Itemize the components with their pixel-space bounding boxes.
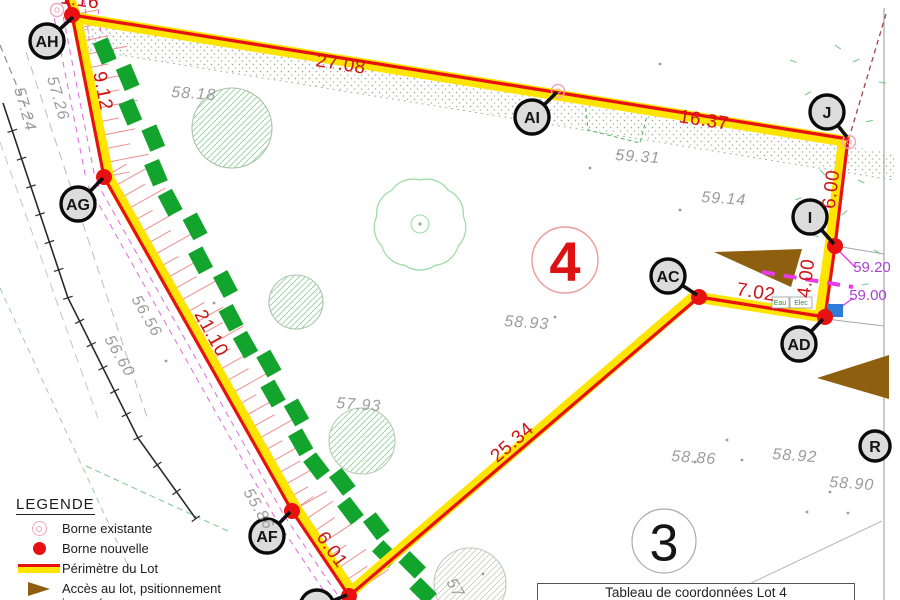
access-arrow-icon [16,581,62,596]
hedge-square [116,64,140,91]
lot-perimeter-icon [16,561,62,576]
vegetation-scribble [853,59,859,62]
coordinates-table: Tableau de coordonnées Lot 4 [537,583,855,600]
plan-graphic [107,154,148,162]
vegetation-scribble [805,92,811,96]
marker-label-AC: AC [656,269,680,286]
elevation-point [213,302,216,305]
hedge-square [213,270,238,298]
elevation-point [659,63,662,66]
hedge-square [188,246,213,274]
marker-J: J [810,95,847,137]
legend-item-existing-borne: Borne existante [16,521,266,536]
marker-partial [300,590,347,600]
elevation-point [554,316,557,319]
plan-graphic [153,462,161,468]
plan-graphic [168,261,198,278]
plan-graphic [836,246,884,254]
access-arrow [817,355,889,399]
elevation-point [679,209,682,212]
hedge-square [141,124,165,151]
hedge-square [183,212,208,240]
vegetation-scribble [835,45,841,49]
vegetation-scribble [842,211,847,215]
elevation-point [482,573,485,576]
hedge-square [409,577,437,600]
hedge-square [337,497,364,525]
marker-R: R [860,431,890,461]
hedge-square [398,551,426,579]
marker-label-R: R [869,439,881,456]
vegetation-scribble [866,120,873,122]
hedge-square [144,159,168,186]
tree-symbol [269,275,323,329]
legend-item-access: Accès au lot, psitionnement imposé, 4.0m… [16,581,266,600]
elevation-label-58.92: 58.92 [772,446,818,466]
legend: LEGENDE Borne existante Borne nouvelle P… [16,496,266,600]
elevation-label-56.56: 56.56 [128,293,165,341]
marker-label-AG: AG [66,197,90,214]
elevation-point [589,167,592,170]
plan-graphic [122,184,145,197]
legend-label: Borne nouvelle [62,541,149,556]
vegetation-scribble [862,284,869,285]
vegetation-scribble [790,60,797,62]
plan-graphic [849,14,886,138]
vegetation-scribble [858,180,864,183]
hedge-square [288,428,313,456]
lot-number: 4 [549,230,580,293]
neighbor-lot-number: 3 [650,515,679,573]
existing-borne-icon [16,521,62,536]
marker-AG: AG [61,178,103,221]
elevation-label-57.24: 57.24 [10,85,39,133]
plan-graphic [155,234,192,255]
new-borne-icon [16,541,62,556]
measurement-label-4.00: 4.00 [794,258,820,299]
plan-graphic [105,144,131,149]
plan-graphic [418,222,421,225]
plan-graphic [102,129,135,136]
marker-AC: AC [651,259,697,295]
elevation-point [847,512,850,515]
marker-AD: AD [782,319,823,361]
elevation-label-59.14: 59.14 [701,189,747,209]
elevation-label-58.86: 58.86 [671,448,717,468]
legend-label: Accès au lot, psitionnement imposé, 4.0m… [62,581,266,600]
hedge-square [233,331,258,359]
elevation-label-58.90: 58.90 [829,474,875,494]
elevation-point [165,360,168,363]
elevation-point [806,511,809,514]
vegetation-scribble [879,82,886,83]
plan-graphic [148,230,171,243]
marker-label-AH: AH [35,34,58,51]
hedge-square [303,452,330,480]
plan-graphic [174,276,197,289]
marker-label-AI: AI [524,110,540,127]
coordinates-table-title: Tableau de coordonnées Lot 4 [605,585,787,600]
legend-label: Périmètre du Lot [62,561,158,576]
plan-graphic [745,521,882,586]
marker-label-I: I [808,210,812,227]
hedge-square [158,189,183,217]
existing-borne-icon [55,8,59,12]
survey-plan: AHAGAFAIJIACADR1.1627.0816.376.004.007.0… [0,0,900,600]
plan-graphic [172,489,180,495]
plan-graphic [226,369,249,382]
elevation-point [741,459,744,462]
plan-graphic [116,169,146,186]
plan-graphic [305,501,333,520]
plan-graphic [181,280,218,301]
fence-line [3,103,196,519]
marker-AH: AH [30,17,73,58]
level-label-59.20: 59.20 [853,259,891,276]
legend-title: LEGENDE [16,496,95,515]
elevation-label-59.31: 59.31 [615,147,661,167]
level-label-59.00: 59.00 [849,287,887,304]
hedge-square [260,380,285,408]
tree-symbol [329,408,395,474]
plan-graphic [826,319,884,326]
utility-label-eau: Eau [774,300,787,307]
tree-symbol [434,548,506,600]
marker-label-J: J [823,105,832,122]
marker-label-AD: AD [787,337,810,354]
plan-graphic [142,215,172,232]
elevation-label-57.93: 57.93 [336,395,382,415]
hedge-square [363,512,390,540]
hedge-square [119,98,143,125]
elevation-label-58.18: 58.18 [171,84,217,104]
plan-graphic [0,142,98,418]
vegetation-scribble [795,198,802,200]
legend-item-perimeter: Périmètre du Lot [16,561,266,576]
plan-graphic [300,590,334,600]
elevation-point [726,439,729,442]
plan-graphic [297,491,327,508]
legend-item-new-borne: Borne nouvelle [16,541,266,556]
utility-label-elec: Elec [794,300,808,307]
legend-label: Borne existante [62,521,152,536]
hedge-square [256,350,281,378]
elevation-label-58.93: 58.93 [504,313,550,333]
